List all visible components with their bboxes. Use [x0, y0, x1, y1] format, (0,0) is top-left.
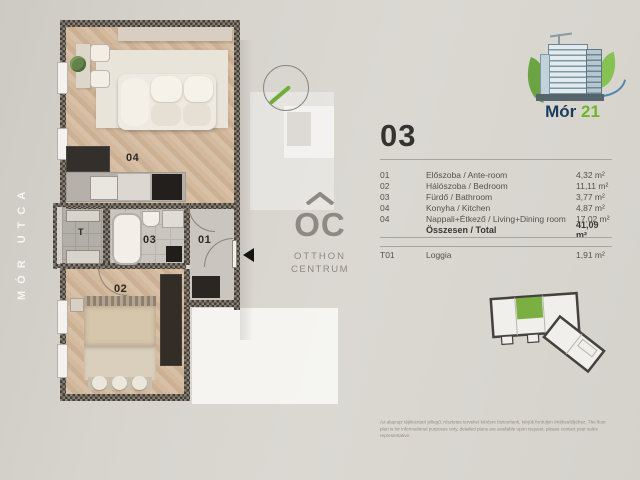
- row-area: 3,77 m²: [576, 192, 612, 202]
- chair-1: [90, 44, 110, 62]
- key-plan-bump-2: [527, 334, 539, 343]
- divider-loggia: [380, 246, 612, 247]
- row-name: Hálószoba / Bedroom: [426, 181, 576, 191]
- window-bedroom-1: [57, 300, 68, 334]
- compass-needle: [269, 85, 291, 105]
- pouf-2: [112, 376, 127, 390]
- key-plan-bump-1: [501, 336, 513, 345]
- row-num: 04: [380, 203, 426, 213]
- bed-blanket: [84, 346, 156, 380]
- loggia-name: Loggia: [426, 250, 576, 260]
- disclaimer-hu: Az alaprajz tájékoztató jellegű, részlet…: [380, 420, 587, 425]
- row-name: Előszoba / Ante-room: [426, 170, 576, 180]
- table-row: 02 Hálószoba / Bedroom 11,11 m²: [380, 180, 612, 191]
- compass-icon: [263, 65, 309, 111]
- key-plan-unit-highlight: [516, 297, 543, 320]
- key-plan: [486, 280, 614, 384]
- row-num: 04: [380, 214, 426, 224]
- loggia-area: 1,91 m²: [576, 250, 612, 260]
- wall-ante-bottom: [184, 300, 240, 307]
- total-row: Összesen / Total 41,09 m²: [380, 224, 612, 235]
- plant: [70, 56, 86, 72]
- row-num: 02: [380, 181, 426, 191]
- page: MÓR UTCA: [0, 0, 640, 480]
- window-living-1: [57, 62, 68, 94]
- building-crane-arm: [550, 32, 572, 37]
- wardrobe: [160, 274, 182, 366]
- sofa-seat-2: [183, 103, 211, 126]
- building-left-wing: [540, 54, 550, 98]
- sofa-cushion-2: [184, 76, 213, 102]
- wall-bottom: [60, 394, 190, 401]
- brand-number: 21: [581, 102, 600, 121]
- table-row: 03 Fürdő / Bathroom 3,77 m²: [380, 191, 612, 202]
- row-name: Fürdő / Bathroom: [426, 192, 576, 202]
- wall-loggia-bottom: [53, 264, 103, 268]
- label-living-kitchen: 04: [126, 152, 139, 164]
- watermark-otthon-centrum: OC OTTHON CENTRUM: [284, 192, 356, 275]
- wall-left-lower: [60, 268, 66, 400]
- kitchen-cabinet-tall: [66, 146, 110, 172]
- nightstand: [70, 298, 84, 312]
- wall-loggia-top: [53, 203, 103, 207]
- label-bathroom: 03: [143, 234, 156, 246]
- sofa-seat-1: [151, 103, 181, 126]
- row-num: 03: [380, 192, 426, 202]
- label-loggia: T: [78, 227, 84, 237]
- loggia-bench-top: [66, 210, 100, 222]
- entrance-arrow-icon: [243, 248, 254, 262]
- loggia-bench-bottom: [66, 250, 100, 264]
- total-label: Összesen / Total: [426, 225, 576, 235]
- label-ante-room: 01: [198, 234, 211, 246]
- unit-title: 03: [380, 118, 416, 154]
- roof-icon: [305, 192, 335, 205]
- brand-logo: Mór 21: [520, 32, 625, 118]
- building-facade: [548, 44, 588, 98]
- row-name: Konyha / Kitchen: [426, 203, 576, 213]
- toilet: [142, 211, 160, 227]
- kitchen-sink: [90, 176, 118, 200]
- watermark-line1: OTTHON: [284, 251, 356, 262]
- sideboard: [118, 27, 232, 41]
- divider-top: [380, 159, 612, 160]
- table-row: 01 Előszoba / Ante-room 4,32 m²: [380, 169, 612, 180]
- pouf-1: [92, 376, 107, 390]
- room-table: 01 Előszoba / Ante-room 4,32 m² 02 Hálós…: [380, 169, 612, 235]
- row-name: Nappali+Étkező / Living+Dining room: [426, 214, 576, 224]
- watermark-initials: OC: [284, 205, 356, 245]
- chair-2: [90, 70, 110, 88]
- bed-canopy: [84, 296, 156, 306]
- watermark-line2: CENTRUM: [284, 264, 356, 275]
- label-bedroom: 02: [114, 283, 127, 295]
- divider-total: [380, 237, 612, 238]
- kitchen-cooktop: [152, 174, 182, 200]
- entry-door-leaf: [232, 240, 237, 268]
- table-row: 04 Konyha / Kitchen 4,87 m²: [380, 202, 612, 213]
- row-area: 4,87 m²: [576, 203, 612, 213]
- sofa-arm: [121, 78, 149, 126]
- brand-name: Mór: [545, 102, 576, 121]
- shower: [162, 210, 184, 228]
- wall-bedroom-right: [184, 269, 190, 401]
- loggia-num: T01: [380, 250, 426, 260]
- bath-shelf: [166, 246, 182, 262]
- brand-wordmark: Mór 21: [520, 102, 625, 122]
- bed-pillows: [84, 306, 156, 346]
- entry-mat: [192, 276, 220, 298]
- building-base: [536, 94, 604, 101]
- row-area: 11,11 m²: [576, 181, 612, 191]
- pouf-3: [132, 376, 147, 390]
- window-bedroom-2: [57, 344, 68, 378]
- wall-loggia-bath: [103, 203, 110, 268]
- wall-top: [60, 20, 240, 27]
- disclaimer: Az alaprajz tájékoztató jellegű, részlet…: [380, 419, 612, 439]
- loggia-row: T01 Loggia 1,91 m²: [380, 249, 612, 260]
- bathtub: [112, 213, 142, 265]
- row-area: 4,32 m²: [576, 170, 612, 180]
- building-side: [586, 49, 602, 98]
- sofa-cushion-1: [151, 76, 182, 102]
- kitchen-worktop: [118, 174, 150, 200]
- row-num: 01: [380, 170, 426, 180]
- wall-loggia-left: [53, 203, 57, 269]
